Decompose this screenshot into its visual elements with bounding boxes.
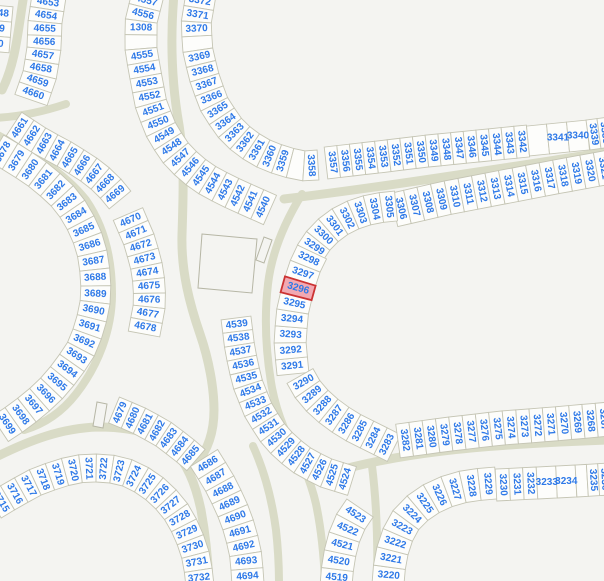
parcel-label: 3370 [185,23,208,35]
parcel-map-viewport[interactable]: 4890465346544655465646574658465946604661… [0,0,604,581]
parcel-label: 48 [0,8,10,20]
parcel-label: 3305 [382,195,395,219]
parcel-label: 3234 [555,476,578,487]
parcel-map-svg: 4890465346544655465646574658465946604661… [0,0,604,581]
parcel-label: 3349 [427,139,440,163]
parcel-label: 3294 [280,313,304,326]
parcel-label: 3272 [531,414,544,437]
parcel-label: 3722 [98,457,111,480]
parcel-label: 3232 [524,472,536,495]
parcel-label: 3721 [82,457,94,480]
parcel-label: 1308 [130,22,153,33]
parcel-label: 3274 [504,416,517,439]
parcel-label: 3347 [452,136,465,160]
parcel-label: 3235 [587,469,599,492]
parcel-label: 3220 [377,569,401,581]
parcel-label: 3231 [510,473,522,496]
parcel-label: 3348 [439,138,452,162]
parcel-label: 3732 [187,571,211,581]
parcel-label: 3346 [465,135,478,159]
parcel-label: 3340 [567,131,590,142]
parcel-label: 4519 [325,571,349,581]
parcel-label: 3291 [281,360,305,373]
parcel-label: 3293 [279,329,302,341]
parcel-label: 3342 [515,130,528,154]
parcel-label: 4694 [236,570,259,581]
parcel-label: 4656 [33,36,56,48]
parcel-label: 3268 [584,409,597,433]
parcel-label: 3269 [570,410,583,434]
parcel-label: 3688 [84,271,107,283]
parcel-label: 3344 [490,133,503,157]
parcel-label: 3273 [517,415,530,438]
parcel-label: 3358 [305,154,317,177]
parcel-label: 4693 [235,555,259,568]
parcel-label: 4676 [138,294,161,306]
parcel-label: 3271 [544,413,557,436]
parcel-label: 3270 [557,412,570,436]
parcel-label: 4655 [33,23,56,35]
parcel-label: 4675 [138,280,161,292]
parcel-label: 3292 [279,344,303,357]
building-large [198,234,257,293]
parcel-label: 3343 [502,131,515,155]
parcel-label: 3230 [497,473,509,496]
parcel-label: 3689 [84,288,107,300]
parcel-label: 3229 [481,472,494,496]
parcel-label: 3345 [477,134,490,158]
